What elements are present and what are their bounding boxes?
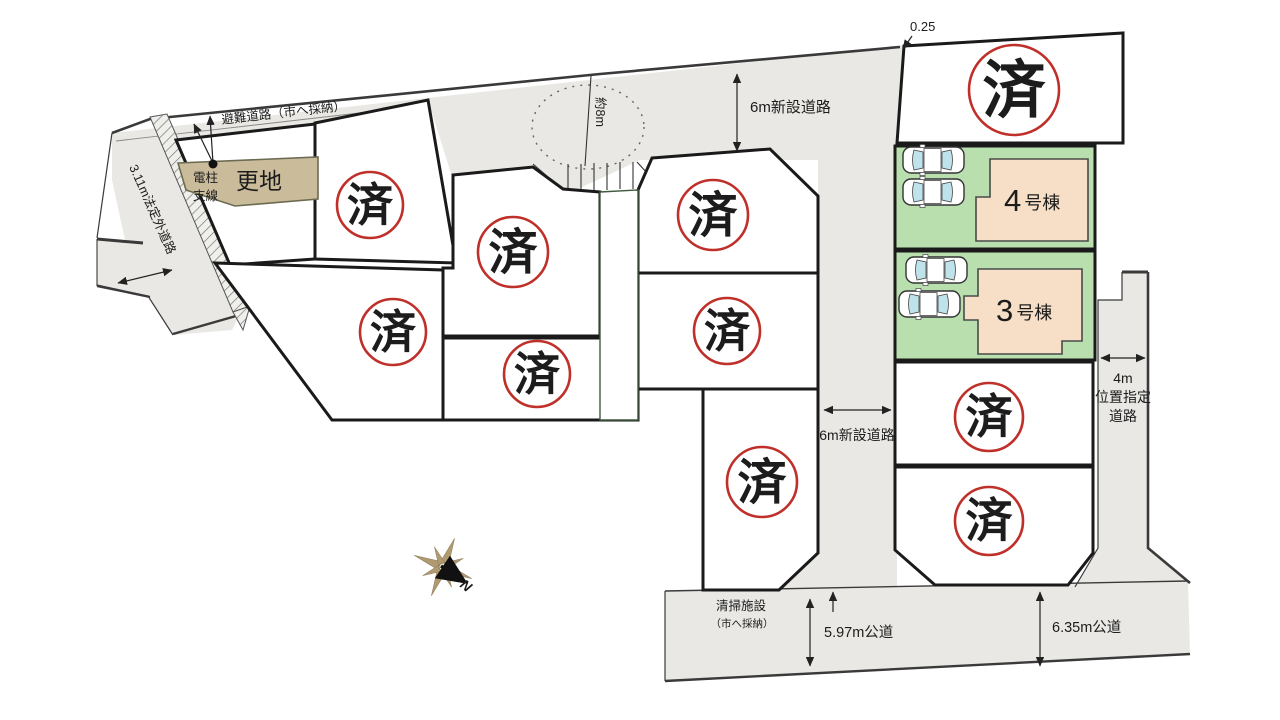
public-road-right-label: 6.35m公道 (1052, 619, 1121, 636)
sold-stamp: 済 (370, 307, 417, 358)
sold-stamp: 済 (966, 496, 1014, 548)
vacant-label: 更地 (236, 168, 282, 194)
public-road-left-label: 5.97m公道 (824, 624, 893, 641)
compass-rose: N (402, 526, 483, 607)
sold-stamp: 済 (983, 56, 1047, 126)
access-corridor (600, 190, 638, 420)
sold-stamp: 済 (488, 225, 538, 280)
sold-stamp: 済 (688, 188, 738, 243)
car-icon (899, 289, 960, 320)
car-icon (906, 255, 967, 286)
circle-width-label: 約8m (593, 97, 608, 127)
right-road-label-1: 4m (1113, 370, 1132, 386)
pole-label-2: 支線 (193, 188, 219, 203)
sold-stamp: 済 (704, 306, 751, 357)
right-road-label-3: 道路 (1109, 408, 1137, 424)
sold-stamp: 済 (966, 392, 1014, 444)
car-icon (903, 177, 964, 208)
sold-stamp: 済 (737, 455, 787, 510)
car-icon (903, 145, 964, 176)
site-plan: 4号棟 3号棟 済 済 済 済 済 済 済 済 済 済 (0, 0, 1280, 720)
utility-pole-dot (209, 160, 218, 169)
sold-stamp: 済 (347, 180, 394, 231)
cleaning-label-2: （市へ採納） (711, 617, 774, 630)
site-plan-svg: 4号棟 3号棟 済 済 済 済 済 済 済 済 済 済 (0, 0, 1280, 720)
sold-stamp: 済 (514, 349, 561, 400)
offset-label: 0.25 (910, 19, 935, 34)
road-new-mid-label: 6m新設道路 (819, 427, 894, 443)
road-new-top-label: 6m新設道路 (750, 99, 831, 116)
right-road-label-2: 位置指定 (1095, 389, 1151, 405)
cleaning-label-1: 清掃施設 (716, 598, 767, 613)
pole-label-1: 電柱 (193, 170, 218, 185)
